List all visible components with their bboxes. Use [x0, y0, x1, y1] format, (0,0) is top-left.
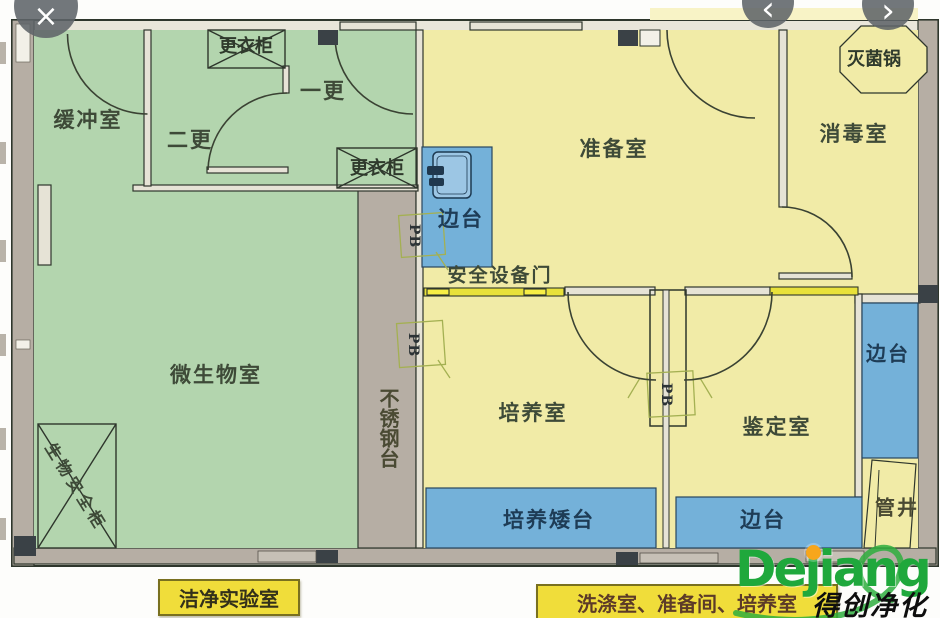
room-label-disinfect: 消毒室	[820, 118, 889, 148]
caption-clean-lab: 洁净实验室	[158, 579, 300, 616]
fixture-label-safety-door: 安全设备门	[447, 261, 552, 288]
close-icon: ×	[33, 2, 58, 38]
passbox-label-1: PB	[406, 224, 422, 248]
caption-clean-lab-text: 洁净实验室	[179, 583, 279, 612]
chevron-right-icon: ›	[881, 0, 895, 30]
room-label-microbiology: 微生物室	[170, 359, 262, 389]
room-label-first-change: 一更	[300, 75, 346, 105]
fixture-label-side-bench-left: 边台	[438, 203, 484, 233]
fixture-label-wardrobe-bottom: 更衣柜	[350, 154, 404, 180]
zone-divider-wall	[416, 30, 423, 548]
vent-box	[640, 30, 660, 46]
room-label-pipe-shaft: 管井	[875, 492, 919, 521]
passbox-label-3: PB	[658, 383, 674, 407]
passbox-label-2: PB	[405, 333, 421, 357]
room-label-buffer: 缓冲室	[54, 104, 123, 134]
fixture-label-steel-bench: 不锈钢台	[378, 388, 398, 468]
chevron-left-icon: ‹	[761, 0, 775, 28]
margin-ticks	[0, 42, 6, 540]
fixture-label-culture-low-bench: 培养矮台	[503, 504, 595, 534]
fixture-label-side-bench-right: 边台	[866, 338, 910, 367]
fixture-label-sterilizer: 灭菌锅	[847, 45, 901, 71]
room-label-prep: 准备室	[580, 133, 649, 163]
fixture-label-wardrobe-top: 更衣柜	[219, 32, 273, 58]
sink-icon	[427, 152, 471, 198]
room-label-identification: 鉴定室	[743, 411, 812, 441]
room-label-culture: 培养室	[499, 397, 568, 427]
watermark-slogan: 得创净化	[812, 584, 928, 618]
watermark-dot-icon	[806, 545, 821, 560]
room-label-second-change: 二更	[167, 124, 213, 154]
image-viewer: 缓冲室 二更 一更 更衣柜 更衣柜 准备室 消毒室 灭菌锅 边台 安全设备门 微…	[0, 0, 940, 618]
